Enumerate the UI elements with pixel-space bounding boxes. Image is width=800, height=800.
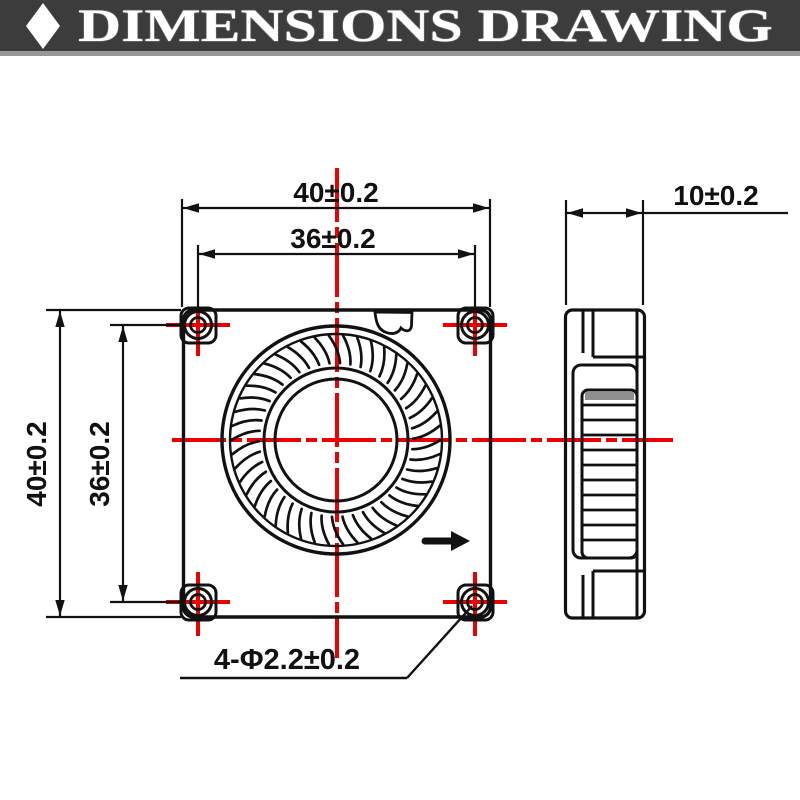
front-width-dimension: 40±0.2 bbox=[293, 177, 378, 208]
dimensions-drawing-page: DIMENSIONS DRAWING bbox=[0, 0, 800, 800]
centerlines bbox=[172, 168, 673, 658]
fan-dimensions-figure: 40±0.2 36±0.2 40±0.2 36±0.2 10±0.2 4-Φ2.… bbox=[0, 0, 800, 800]
side-vent-slats bbox=[582, 405, 637, 540]
side-vent-shadow bbox=[585, 392, 634, 400]
front-height-dimension: 40±0.2 bbox=[21, 421, 52, 506]
rotation-arrow-icon bbox=[425, 531, 470, 551]
front-hole-spacing-height-dimension: 36±0.2 bbox=[84, 421, 115, 506]
mounting-holes-dimension: 4-Φ2.2±0.2 bbox=[214, 644, 360, 676]
front-hole-spacing-width-dimension: 36±0.2 bbox=[290, 223, 375, 254]
housing-notch bbox=[375, 312, 412, 334]
side-depth-dimension: 10±0.2 bbox=[673, 180, 758, 211]
side-vent-opening bbox=[582, 390, 637, 558]
side-view bbox=[566, 310, 645, 618]
